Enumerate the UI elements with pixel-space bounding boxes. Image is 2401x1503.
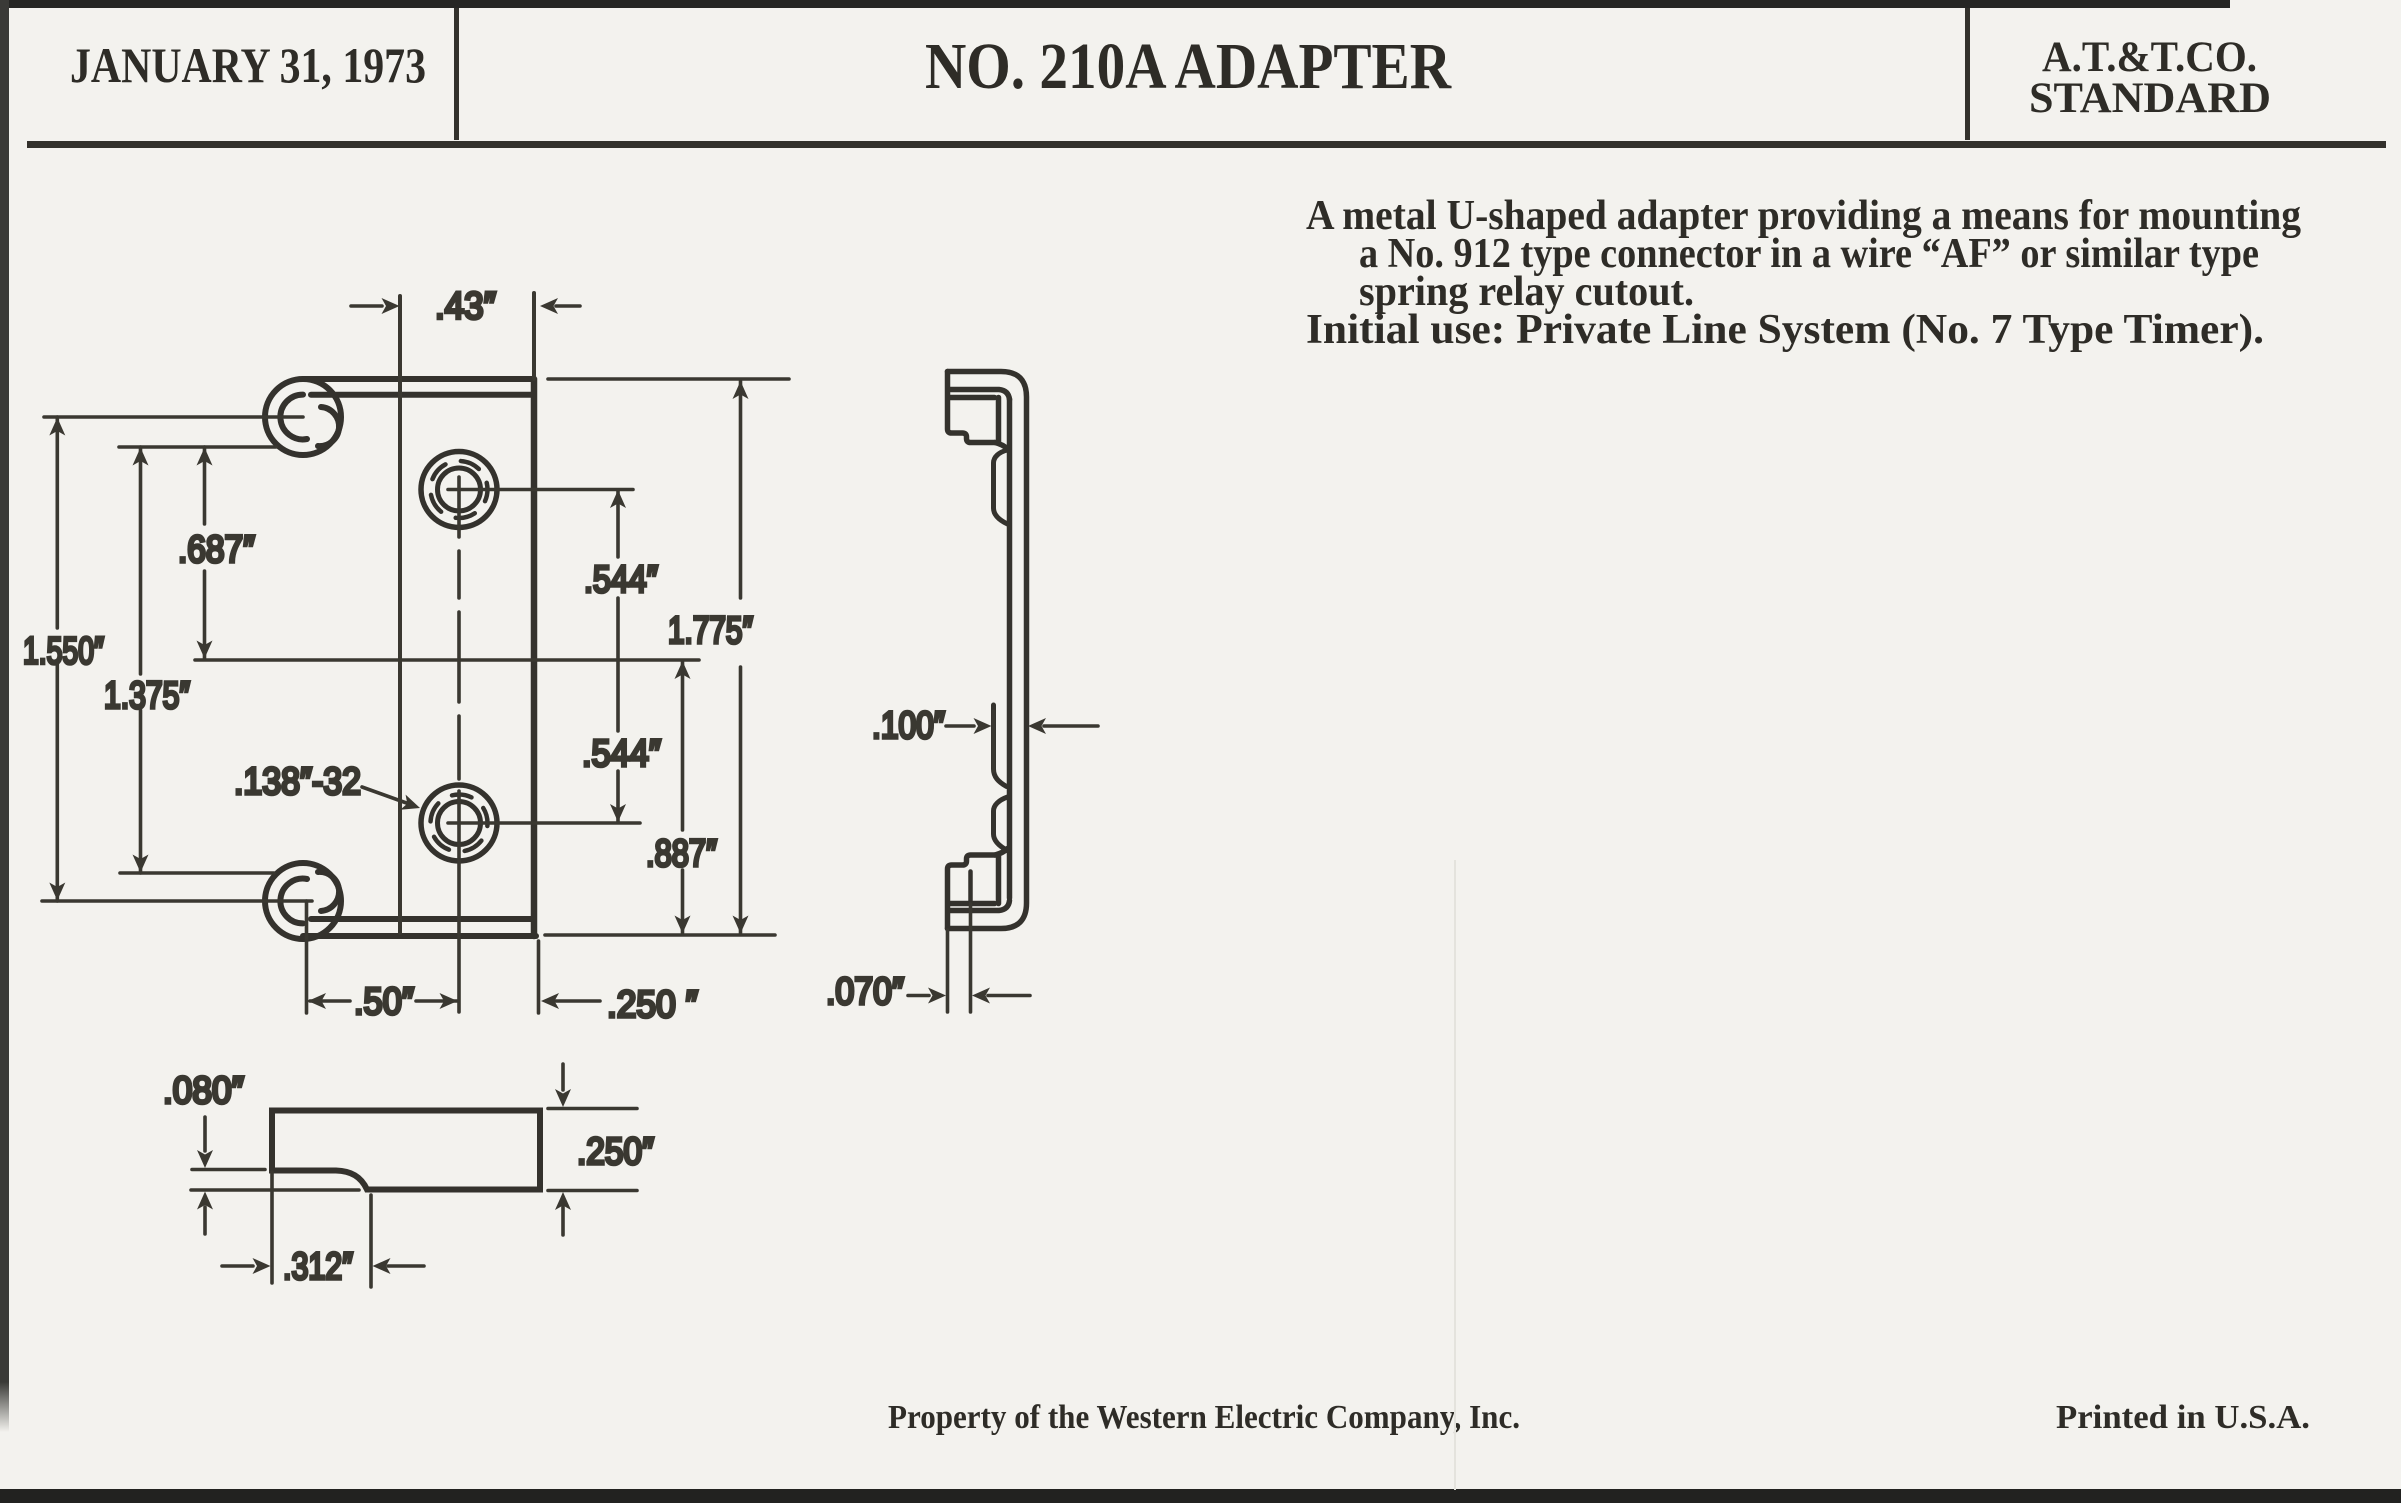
svg-text:.080″: .080″ (163, 1070, 244, 1112)
svg-text:A.T.&T.CO.: A.T.&T.CO. (2042, 34, 2257, 81)
svg-text:.43″: .43″ (435, 286, 496, 328)
svg-text:.070″: .070″ (826, 971, 904, 1013)
svg-text:STANDARD: STANDARD (2029, 75, 2271, 122)
svg-text:NO. 210A ADAPTER: NO. 210A ADAPTER (925, 30, 1452, 103)
svg-text:Initial use: Private Line Syst: Initial use: Private Line System (No. 7 … (1306, 307, 2264, 353)
svg-text:1.775″: 1.775″ (668, 610, 753, 652)
svg-text:.250″: .250″ (577, 1131, 654, 1173)
svg-text:Property of the Western Electr: Property of the Western Electric Company… (888, 1399, 1520, 1436)
svg-text:Printed in U.S.A.: Printed in U.S.A. (2056, 1399, 2310, 1436)
svg-text:JANUARY 31, 1973: JANUARY 31, 1973 (70, 37, 426, 93)
svg-text:.250 ″: .250 ″ (607, 984, 698, 1026)
svg-text:.50″: .50″ (354, 981, 414, 1023)
svg-text:.100″: .100″ (872, 705, 945, 747)
svg-text:.887″: .887″ (646, 833, 717, 875)
svg-text:.312″: .312″ (283, 1246, 353, 1288)
svg-text:1.375″: 1.375″ (104, 675, 190, 717)
svg-text:.544″: .544″ (582, 733, 661, 775)
svg-text:.544″: .544″ (584, 559, 658, 601)
svg-text:1.550″: 1.550″ (23, 631, 104, 673)
svg-text:.138″-32: .138″-32 (234, 761, 361, 803)
svg-text:.687″: .687″ (178, 529, 255, 571)
